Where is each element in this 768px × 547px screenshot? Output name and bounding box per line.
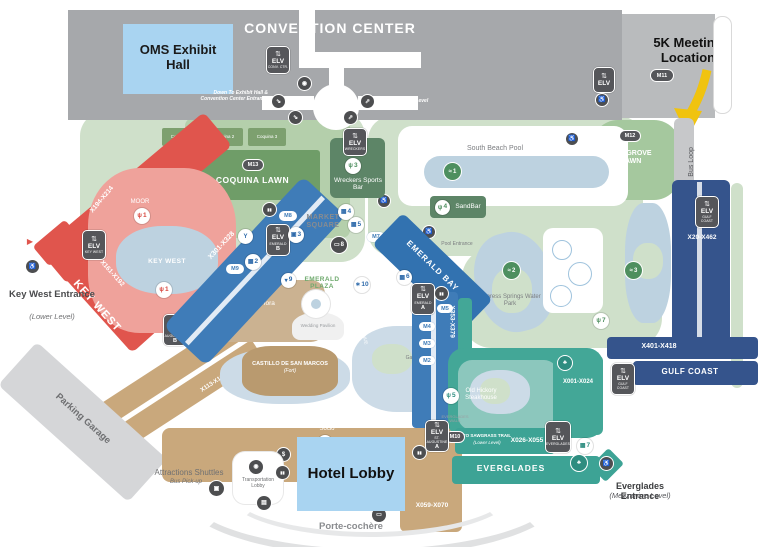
dining-marker: ψ5 [443,388,459,404]
down-to-exhibit-note: Down To Exhibit Hall & Convention Center… [192,91,268,102]
elevator-icon: ⇅ [420,286,426,293]
convention-center-title: CONVENTION CENTER [240,21,420,37]
accessibility-icon: ♿ [600,457,613,470]
palm-marker: ♣ [571,455,587,471]
everglades-wing-label: EVERGLADES [466,464,556,474]
key-west-entrance-label: Key West Entrance [8,290,96,301]
drink-marker: Y [238,229,253,244]
everglades-entrance-sublabel: (Mezzanine Level) [598,492,682,500]
m3-badge: M3 [419,339,435,348]
elevator-icon: ⇅ [434,422,440,429]
everglades-range1-label: X001-X024 [555,379,601,386]
coquina3-label: Coquina 3 [248,134,286,139]
bus-loop-road [713,16,732,114]
accessibility-icon: ♿ [596,94,608,106]
resort-map: CONVENTION CENTER OMS Exhibit Hall ⇅ ELV… [0,0,768,547]
elevator-everglades-badge: ⇅ ELV EVERGLADES [545,421,571,453]
m12-badge: M12 [620,131,640,141]
treat-marker: ▾9 [281,273,296,288]
castillo-sublabel: (Fort) [246,369,334,375]
wedding-pavilion-label: Wedding Pavilion [294,323,342,328]
sandbar-label: SandBar [451,203,485,210]
elevator-icon: ⇅ [91,236,97,243]
elevator-conv-ctr-badge: ⇅ ELV CONV. CTR. [266,46,290,74]
south-beach-pool-label: South Beach Pool [450,145,540,153]
wreckers-label: Wreckers Sports Bar [332,177,384,192]
mangrove-lawn-label: MANGROVE LAWN [606,150,656,166]
restroom-icon: ▮▮ [263,203,276,216]
restroom-icon: ▮▮ [435,287,448,300]
bell-icon: ◉ [298,77,311,90]
meeting-marker: ▦2 [245,254,261,270]
elevator-wreckers-badge: ⇅ ELV WRECKERS [343,128,367,156]
elevator-icon: ⇅ [352,133,358,140]
emerald-range2-label: X353-X379 [448,294,455,350]
key-west-lagoon-label: KEY WEST [141,258,193,265]
pool-marker: ≈2 [503,262,520,279]
old-hickory-label: Old Hickory Steakhouse [458,388,504,401]
gulf-coast-label: GULF COAST [658,368,722,377]
escalator-up-icon: ⇗ [361,95,374,108]
elevator-gulf-coast-badge: ⇅ ELV GULF COAST [695,196,719,228]
meeting-marker: ▦7 [577,438,593,454]
elevator-gulf-coast-badge: ⇅ ELV GULF COAST [611,363,635,395]
m4-badge: M4 [419,322,435,331]
pool-marker: ≈3 [625,262,642,279]
m5-badge: M5 [437,304,453,313]
moor-label: MOOR [125,199,155,206]
key-west-entrance-sublabel: (Lower Level) [8,313,96,321]
elevator-icon: ⇅ [555,428,561,435]
elevator-icon: ⇅ [275,227,281,234]
elevator-emerald-a-badge: ⇅ ELV EMERALD A [411,283,435,315]
porte-cochere-label: Porte-cochère [315,522,387,533]
pool-marker: ≈1 [444,163,461,180]
dining-marker: ψ3 [345,158,361,174]
attractions-shuttles-label: Attractions Shuttles [148,469,230,478]
dining-marker: ψ4 [435,200,450,215]
water-slide [568,262,592,286]
market-square-label: MARKET SQUARE [300,214,346,230]
elevator-annex-badge: ⇅ ELV [593,67,615,93]
walkway [262,96,314,110]
dining-marker: ψ1 [134,208,150,224]
escalator-down-icon: ⇘ [289,111,302,124]
pool-entrance-label: Pool Entrance [438,242,476,248]
dining-marker: ψ7 [593,313,609,329]
escalator-up-icon: ⇗ [344,111,357,124]
elevator-emerald-b-badge: ⇅ ELV EMERALD B [266,224,290,256]
corridor [299,52,421,68]
m9-badge: M9 [226,264,244,274]
escalator-down-icon: ⇘ [272,95,285,108]
elevator-key-west-badge: ⇅ ELV KEY WEST [82,230,106,260]
water-slide [552,240,572,260]
gulf-range1-label: X20-X462 [681,234,723,241]
av-screen-marker: ▭8 [331,237,347,253]
key-west-entrance-arrow: ▶ [24,238,36,247]
bus-icon: ▣ [209,481,224,496]
accessibility-icon: ♿ [26,260,39,273]
water-slide [550,285,572,307]
palm-marker: ♣ [558,356,572,370]
dining-marker: ψ1 [156,282,172,298]
up-to-ballroom-note: Up To Ballroom Level [377,99,437,105]
fountain-water [311,299,321,309]
castillo-label: CASTILLO DE SAN MARCOS [246,361,334,367]
elevator-icon: ⇅ [620,368,626,375]
elevator-st-augustine-a-badge: ⇅ ELV ST. AUGUSTINE A [425,420,449,452]
elevator-icon: ⇅ [704,201,710,208]
meeting-marker: ▦6 [397,270,412,285]
meeting-marker: ▦5 [348,217,364,233]
m2-badge: M2 [419,356,435,365]
attractions-shuttles-sublabel: Bus Pick-up [160,479,212,486]
gulf-range2-label: X401-X418 [628,343,690,351]
elevator-icon: ⇅ [601,73,607,80]
oms-exhibit-hall-label: OMS Exhibit Hall [127,43,229,72]
elevator-icon: ⇅ [275,51,281,58]
accessibility-icon: ♿ [566,133,578,145]
m8-badge: M8 [279,211,297,221]
emerald-plaza-label: EMERALD PLAZA [296,276,348,291]
fun-marker: ∗10 [354,277,370,293]
m13-badge: M13 [243,160,263,170]
everglades-range2-label: X026-X055 [505,437,549,444]
